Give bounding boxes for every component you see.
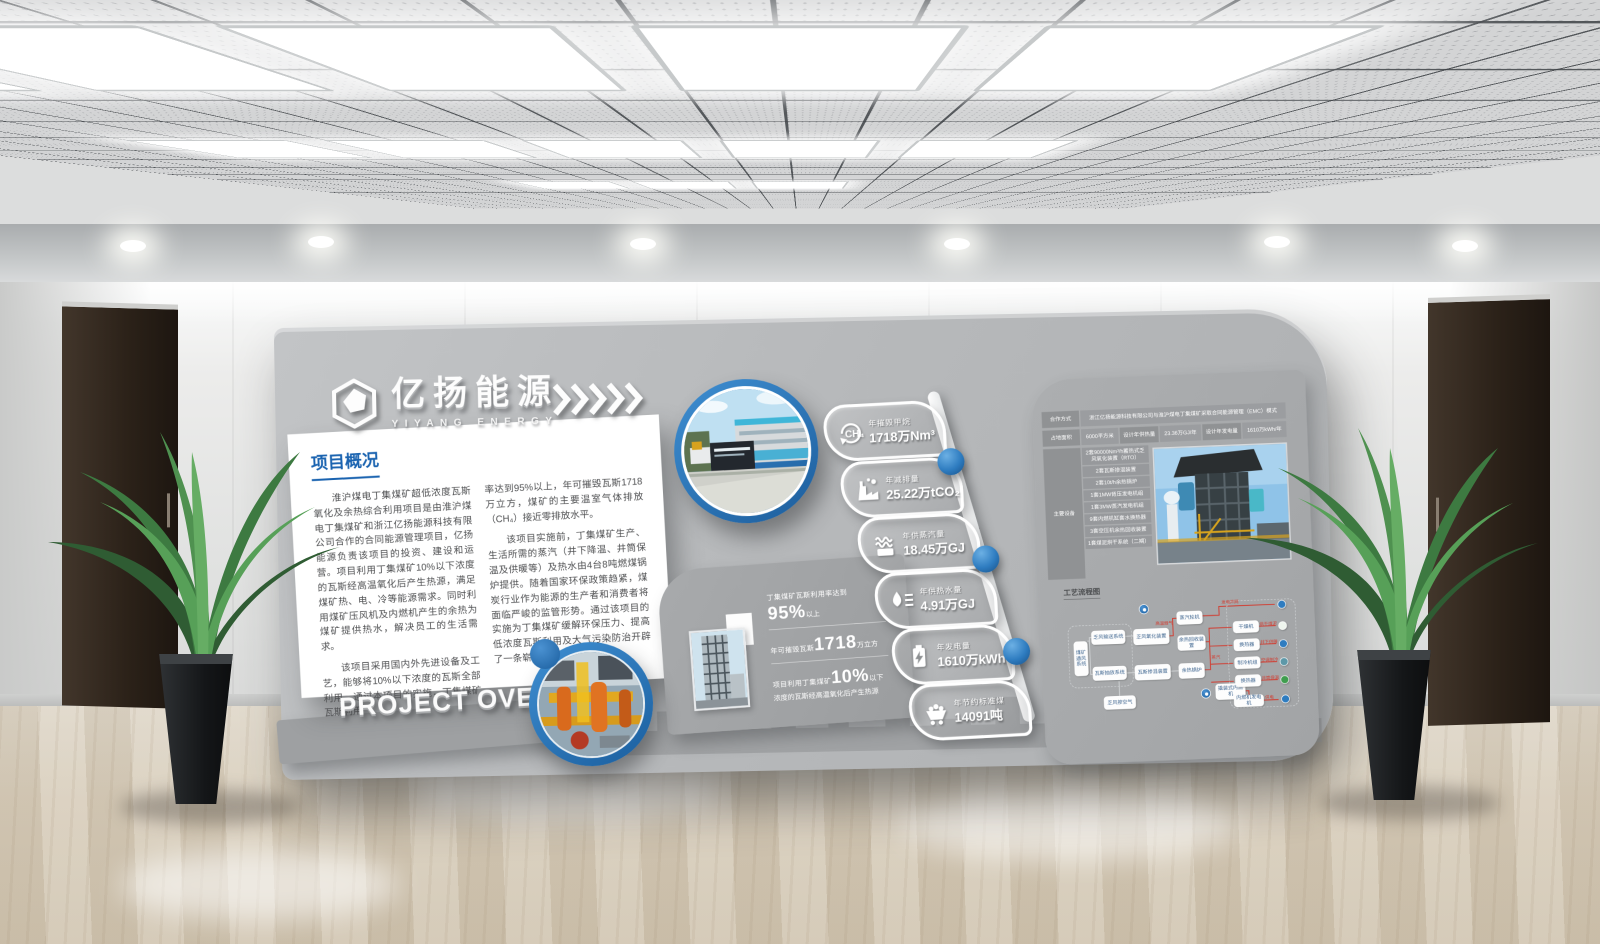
badge-hot-water: 年供热水量4.91万GJ [874, 567, 999, 631]
equipment-item: 2套瓦斯掺混装置 [1082, 464, 1149, 477]
stat-low-concentration: 项目利用丁集煤矿10%以下浓度的瓦斯经高温氧化后产生热源 [772, 663, 891, 704]
lobby-scene: 亿扬能源 YIYANG ENERGY 项目概况 淮沪煤电丁集煤矿超低浓度瓦斯氧化… [0, 0, 1600, 944]
badge-coal-saving: 年节约标准煤14091吨 [908, 679, 1033, 743]
equipment-item: 1套煤泥烘干系统（二期） [1085, 536, 1152, 549]
co2-icon [853, 475, 882, 504]
floor-sheen [120, 850, 400, 920]
stats-panel: 丁集煤矿瓦斯利用率达到 95%以上 年可摧毁瓦斯1718万立方 项目利用丁集煤矿… [656, 554, 915, 735]
plant-leaves [1238, 388, 1548, 678]
coop-label: 合作方式 [1042, 411, 1080, 428]
downlight [308, 236, 334, 248]
badge-methane: CH₄ 年摧毁甲烷1718万Nm³ [822, 399, 947, 463]
potted-plant-right [1238, 388, 1548, 808]
steam-icon [870, 530, 899, 559]
flow-node: 瓦斯抽放系统 [1092, 666, 1127, 681]
svg-text:CH₄: CH₄ [845, 428, 865, 440]
downlight [1452, 240, 1478, 252]
downlight [1264, 236, 1290, 248]
electricity-icon [904, 642, 933, 671]
badge-steam-supply: 年供蒸汽量18.45万GJ [857, 512, 982, 576]
flow-node: 蒸汽轮机 [1176, 611, 1203, 625]
equipment-label: 主要设备 [1043, 448, 1086, 580]
stat-gas-destroyed: 年可摧毁瓦斯1718万立方 [769, 629, 888, 664]
flow-node: 余热锅炉 [1178, 662, 1205, 678]
floor-sheen [900, 790, 1240, 860]
heat-label: 设计年供热量 [1120, 426, 1159, 444]
blue-sphere [972, 545, 1000, 573]
brand-name-cn: 亿扬能源 [391, 375, 560, 412]
coal-icon [922, 697, 951, 726]
equipment-item: 2套90000Nm³/h蓄热式乏风氧化装置（RTO） [1082, 445, 1149, 465]
equipment-item: 2套10t/h余热锅炉 [1083, 476, 1150, 489]
equipment-item: 9套内燃机缸套水换热器 [1084, 512, 1151, 525]
equipment-item: 3套空压机余热回收装置 [1085, 524, 1152, 537]
equipment-photo [538, 651, 644, 757]
factory-photo [681, 386, 815, 520]
flow-edge-label: 发电并网 [1221, 598, 1239, 605]
ceiling-grid [0, 0, 1600, 208]
hot-water-icon [887, 586, 916, 615]
equipment-item: 1套1MW背压发电机组 [1083, 488, 1150, 501]
planter-pot [1348, 650, 1440, 800]
downlight [120, 240, 146, 252]
overview-paragraph: 率达到95%以上，年可摧毁瓦斯1718万立方，煤矿的主要温室气体排放（CH₄）接… [484, 475, 644, 528]
chevron-arrows-icon [551, 381, 652, 417]
area-label: 占地面积 [1042, 429, 1080, 446]
factory-photo-circle [670, 375, 822, 527]
area-value: 6000平方米 [1081, 428, 1119, 445]
flow-edge-label: 蒸汽 [1211, 653, 1220, 660]
power-label: 设计年发电量 [1202, 423, 1241, 441]
ch4-icon: CH₄ [836, 418, 865, 447]
stat-utilization: 丁集煤矿瓦斯利用率达到 95%以上 [766, 583, 886, 630]
flow-node: 余热回收装置 [1177, 634, 1206, 650]
equipment-item: 1套3MW蒸汽发电机组 [1084, 500, 1151, 513]
ceiling-recess [0, 224, 1600, 282]
flow-edge-label: 高温烟气 [1155, 619, 1173, 626]
flow-node: 瓦斯掺混装置 [1134, 664, 1171, 681]
downlight [630, 238, 656, 250]
flow-title: 工艺流程图 [1063, 586, 1100, 600]
equipment-list: 2套90000Nm³/h蓄热式乏风氧化装置（RTO） 2套瓦斯掺混装置 2套10… [1082, 445, 1153, 549]
downlight [944, 238, 970, 250]
exhibition-wall: 亿扬能源 YIYANG ENERGY 项目概况 淮沪煤电丁集煤矿超低浓度瓦斯氧化… [274, 308, 1334, 780]
drying-tower-photo [689, 627, 751, 711]
flow-node: 煤矿通风系统 [1073, 641, 1088, 676]
planter-pot [150, 654, 242, 804]
flow-node: 乏风氧化装置 [1133, 628, 1170, 645]
brand-logo: 亿扬能源 YIYANG ENERGY [331, 375, 560, 431]
potted-plant-left [40, 392, 350, 812]
blue-sphere [1003, 638, 1031, 666]
flow-node: 乏风输送系统 [1091, 630, 1126, 645]
plant-leaves [40, 392, 350, 682]
flow-node: 乏风掺空气 [1104, 695, 1137, 710]
heat-value: 23.36万GJ/年 [1160, 424, 1202, 442]
badge-power-generation: 年发电量1610万kWh [891, 623, 1016, 687]
stats-list: 丁集煤矿瓦斯利用率达到 95%以上 年可摧毁瓦斯1718万立方 项目利用丁集煤矿… [766, 583, 892, 711]
